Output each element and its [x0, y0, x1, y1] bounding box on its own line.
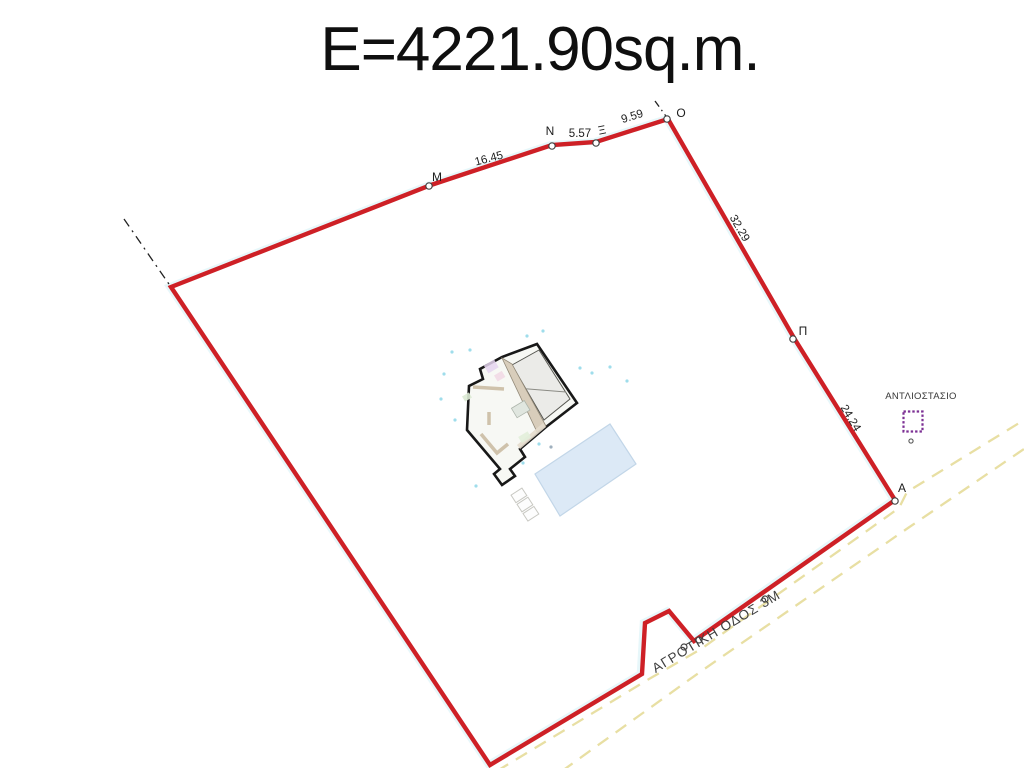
vertex-label-m: M: [432, 170, 442, 184]
vertex-label-pi: Π: [799, 324, 808, 338]
vertex-label-xi: Ξ: [597, 122, 608, 137]
pump-station-icon: [904, 412, 923, 432]
vertex-point-o: [664, 116, 670, 122]
vertex-point-a: [892, 498, 898, 504]
pump-station: ΑΝΤΛΙΟΣΤΑΣΙΟ: [885, 391, 956, 443]
boundary-cyan-fringe: [169, 119, 893, 765]
edge-length-n-xi: 5.57: [569, 128, 591, 140]
road-name-label: ΑΓΡΟΤΙΚΗ ΟΔΟΣ 3Μ: [650, 587, 784, 675]
road-edge-lower: [562, 449, 1024, 768]
pump-station-label: ΑΝΤΛΙΟΣΤΑΣΙΟ: [885, 391, 956, 402]
pool-basin: [535, 424, 636, 516]
pool-steps: [511, 488, 539, 521]
vertex-label-o: O: [676, 106, 685, 120]
vertex-point-pi: [790, 336, 796, 342]
vertex-point-xi: [593, 140, 599, 146]
vertex-label-a: A: [898, 481, 906, 495]
vertex-label-n: N: [546, 124, 555, 138]
pool-dot: [549, 445, 552, 448]
vertex-point-n: [549, 143, 555, 149]
site-plan-drawing: ΑΝΤΛΙΟΣΤΑΣΙΟ M N Ξ O Π A 16.45 5.57 9.59…: [0, 0, 1024, 768]
pump-station-point: [909, 439, 913, 443]
dashdot-extension-topleft: [124, 219, 171, 287]
boundary-polygon: [171, 119, 895, 765]
